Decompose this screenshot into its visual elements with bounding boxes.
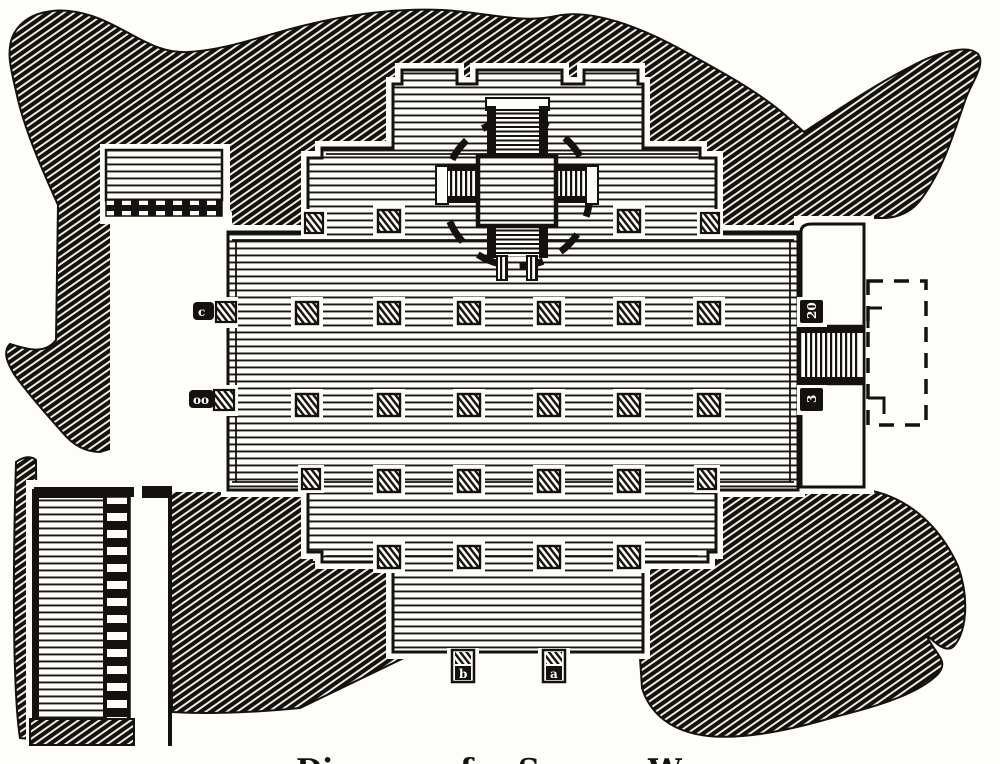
pilaster-label-east-upper: 20 (805, 302, 819, 319)
pilaster-label-west-upper: c (198, 305, 205, 319)
pilaster-label-south-right: a (550, 667, 558, 681)
southwest-building-niches (104, 497, 130, 719)
engraving-page: c oo 20 3 b a Di of S W (0, 0, 1000, 764)
shrine-stair-west (436, 164, 478, 204)
northwest-building-floor (106, 150, 222, 200)
pilaster-label-west-lower: oo (193, 393, 209, 407)
caption-fragment-1: Di (296, 753, 333, 764)
southwest-building-base (30, 719, 134, 745)
west-court (110, 212, 232, 492)
pilaster-west-lower: oo (188, 385, 238, 416)
shrine-cella (478, 156, 556, 226)
pilaster-label-south-left: b (459, 667, 467, 681)
caption-fragment-3: S (518, 753, 540, 764)
east-annexe-dashed (868, 281, 926, 425)
shrine-stair-east (556, 164, 598, 204)
pilaster-east-lower: 3 (797, 385, 827, 415)
pilaster-label-east-lower: 3 (805, 395, 819, 403)
pilaster-west-upper: c (192, 297, 238, 328)
pilaster-south-right: a (538, 648, 570, 688)
southwest-building-top-wall (34, 487, 134, 497)
caption-fragment-2: of (440, 753, 475, 764)
shrine-stair-north (486, 98, 549, 158)
northwest-building-niches (106, 200, 222, 216)
east-porch (800, 224, 864, 487)
pilaster-south-left: b (447, 648, 479, 688)
pilaster-east-upper: 20 (797, 297, 827, 327)
east-annexe-outline (868, 281, 926, 425)
caption: Di of S W (296, 753, 683, 764)
southwest-building-floor (38, 497, 104, 719)
northwest-building (100, 144, 230, 224)
caption-fragment-4: W (647, 753, 683, 764)
east-stair (800, 326, 864, 384)
west-lane-east-edge (168, 490, 172, 746)
southwest-building (26, 480, 142, 752)
engraving-canvas: c oo 20 3 b a Di of S W (0, 0, 1000, 764)
